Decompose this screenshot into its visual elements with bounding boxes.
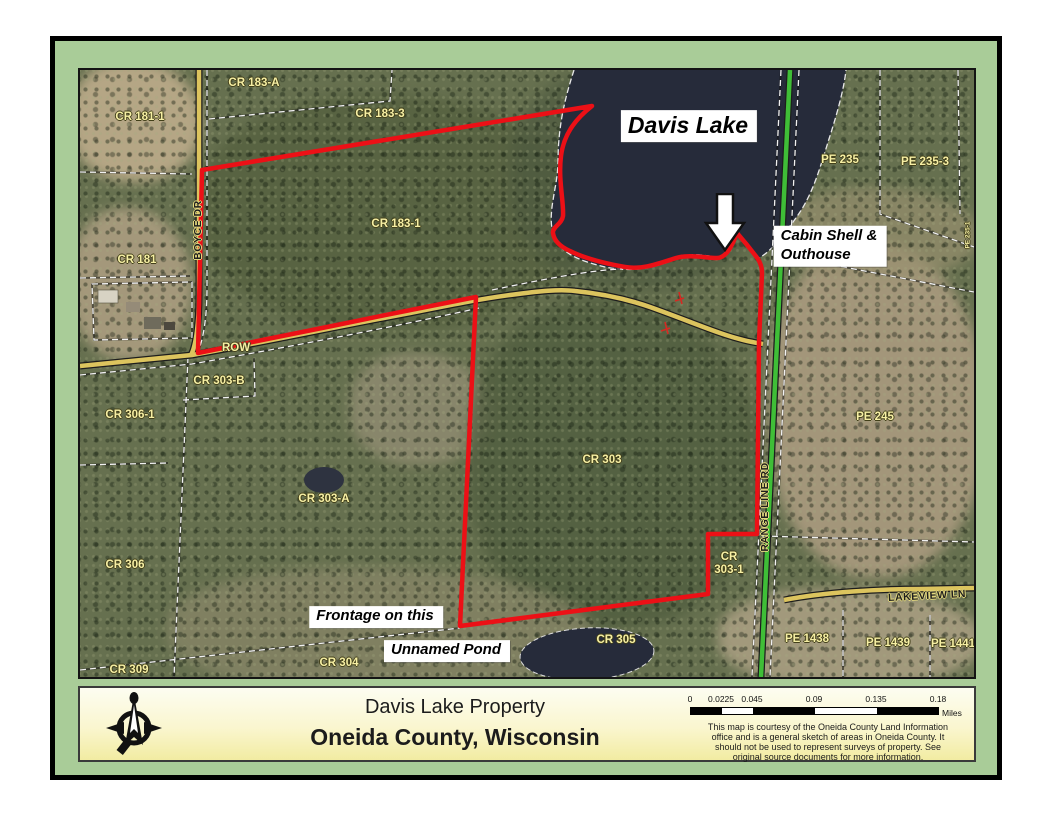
cabin-pointer-arrow-icon: [702, 193, 748, 253]
scale-unit: Miles: [942, 708, 962, 718]
scale-segment: [691, 708, 722, 714]
disclaimer-line: original source documents for more infor…: [676, 752, 980, 762]
parcel-label-cr-309: CR 309: [110, 664, 149, 676]
scale-segment: [753, 708, 815, 714]
scale-segment: [815, 708, 877, 714]
scale-bar: 00.02250.0450.090.1350.18 Miles: [690, 694, 970, 718]
parcel-label-cr-306-1: CR 306-1: [105, 409, 154, 421]
row-label: ROW: [222, 342, 250, 354]
parcel-label-cr-183-1: CR 183-1: [371, 218, 420, 230]
parcel-label-cr-181: CR 181: [118, 254, 157, 266]
parcel-label-cr-305: CR 305: [597, 634, 636, 646]
disclaimer-line: This map is courtesy of the Oneida Count…: [676, 722, 980, 732]
map-title: Davis Lake Property: [230, 696, 680, 719]
scale-tick-0.18: 0.18: [930, 694, 947, 704]
disclaimer-line: should not be used to represent surveys …: [676, 742, 980, 752]
scale-tick-0.135: 0.135: [865, 694, 886, 704]
road-label-range-line-rd: RANGE LINE RD: [759, 462, 771, 551]
frontage-label: Frontage on this: [309, 606, 443, 628]
map-footer: Davis Lake Property Oneida County, Wisco…: [78, 686, 976, 762]
parcel-label-cr-303: CR 303: [583, 454, 622, 466]
map-sheet: CR 181-1CR 183-ACR 183-3CR 183-1CR 181PE…: [0, 0, 1056, 816]
buildings: [98, 290, 175, 330]
disclaimer-line: office and is a general sketch of areas …: [676, 732, 980, 742]
footer-titles: Davis Lake Property Oneida County, Wisco…: [230, 688, 680, 751]
map-subtitle: Oneida County, Wisconsin: [230, 724, 680, 751]
road-label-boyce-dr: BOYCE DR: [192, 200, 204, 259]
parcel-label-pe-1441: PE 1441: [931, 638, 975, 650]
parcel-label-pe-245: PE 245: [856, 411, 894, 423]
aerial-map: CR 181-1CR 183-ACR 183-3CR 183-1CR 181PE…: [78, 68, 976, 679]
scale-tick-0: 0: [688, 694, 693, 704]
parcel-label-cr-303-b: CR 303-B: [193, 375, 244, 387]
parcel-label-cr-183-3: CR 183-3: [355, 108, 404, 120]
scale-segment: [722, 708, 753, 714]
cabin-shell-outhouse-label: Cabin Shell &Outhouse: [774, 226, 887, 267]
unnamed-pond-water: [519, 625, 656, 677]
parcel-label-pe-1438: PE 1438: [785, 633, 829, 645]
unnamed-pond-label: Unnamed Pond: [384, 640, 510, 662]
parcel-label-cr-303-1-line2: 303-1: [714, 564, 743, 576]
parcel-label-pe-235-1: PE 235-1: [965, 221, 972, 248]
parcel-label-cr-306: CR 306: [106, 559, 145, 571]
parcel-label-cr-181-1: CR 181-1: [115, 111, 164, 123]
scale-segment: [877, 708, 939, 714]
parcel-label-pe-1439: PE 1439: [866, 637, 910, 649]
scale-tick-0.0225: 0.0225: [708, 694, 734, 704]
road-ew: [80, 290, 763, 366]
parcel-label-cr-183-a: CR 183-A: [228, 77, 279, 89]
parcel-label-cr-303-1-line1: CR: [721, 551, 738, 563]
small-pond-water: [304, 467, 344, 493]
scale-tick-0.09: 0.09: [806, 694, 823, 704]
scale-bar-segments: [690, 707, 939, 715]
disclaimer-text: This map is courtesy of the Oneida Count…: [676, 722, 980, 762]
parcel-label-pe-235: PE 235: [821, 154, 859, 166]
parcel-label-cr-303-a: CR 303-A: [298, 493, 349, 505]
compass-rose-icon: [104, 691, 166, 757]
parcel-label-pe-235-3: PE 235-3: [901, 156, 949, 168]
parcel-label-cr-304: CR 304: [320, 657, 359, 669]
scale-tick-0.045: 0.045: [741, 694, 762, 704]
davis-lake-label: Davis Lake: [621, 110, 757, 142]
